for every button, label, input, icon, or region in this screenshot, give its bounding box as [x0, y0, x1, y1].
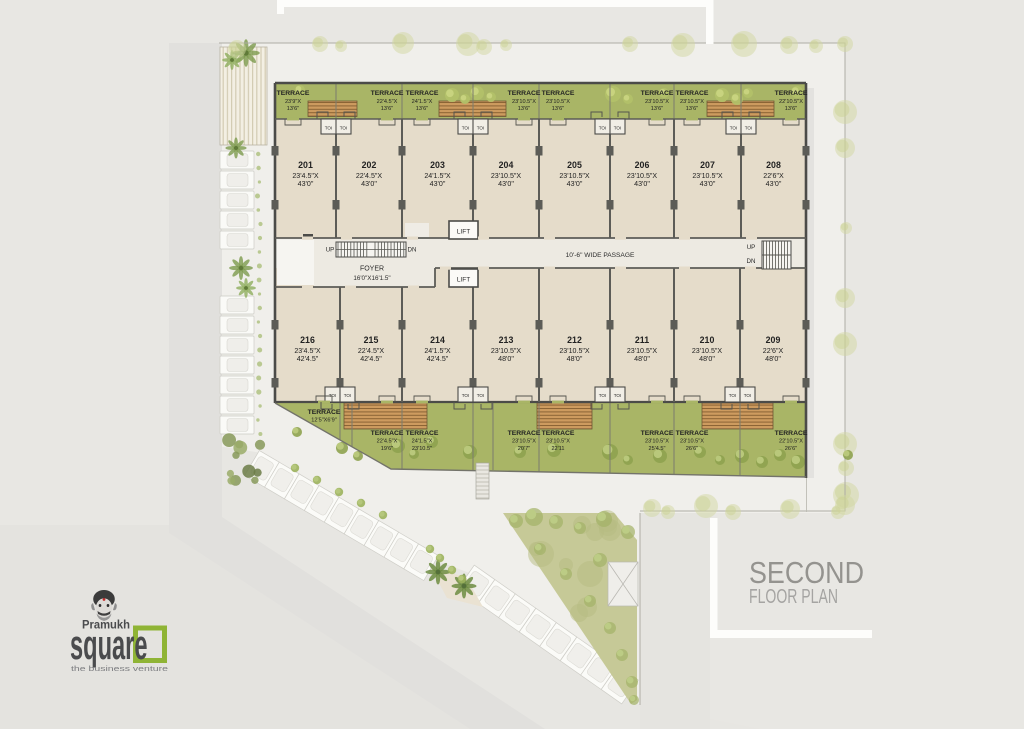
svg-text:10'-6" WIDE PASSAGE: 10'-6" WIDE PASSAGE — [566, 252, 635, 259]
svg-text:13'6": 13'6" — [287, 106, 299, 112]
svg-text:203: 203 — [430, 160, 445, 170]
svg-text:23'10.5"X: 23'10.5"X — [512, 439, 536, 445]
svg-text:22'10.5"X: 22'10.5"X — [779, 99, 803, 105]
svg-text:215: 215 — [364, 335, 379, 345]
svg-text:207: 207 — [700, 160, 715, 170]
svg-text:48'0": 48'0" — [567, 355, 583, 363]
svg-text:213: 213 — [499, 335, 514, 345]
svg-text:43'0": 43'0" — [361, 180, 377, 188]
svg-text:201: 201 — [298, 160, 313, 170]
svg-text:FOYER: FOYER — [360, 266, 384, 273]
svg-text:TOI: TOI — [462, 393, 470, 398]
svg-text:208: 208 — [766, 160, 781, 170]
svg-text:TERRACE: TERRACE — [775, 430, 808, 437]
svg-text:48'0": 48'0" — [498, 355, 514, 363]
svg-text:TOI: TOI — [340, 126, 348, 131]
svg-text:204: 204 — [499, 160, 514, 170]
svg-text:23'10.5"X: 23'10.5"X — [512, 99, 536, 105]
svg-text:TERRACE: TERRACE — [676, 90, 709, 97]
svg-text:22'4.5"X: 22'4.5"X — [377, 439, 398, 445]
svg-text:23'4.5"X: 23'4.5"X — [292, 172, 319, 180]
svg-text:TERRACE: TERRACE — [371, 430, 404, 437]
svg-text:TOI: TOI — [599, 393, 607, 398]
svg-text:13'6": 13'6" — [416, 106, 428, 112]
svg-text:43'0": 43'0" — [298, 180, 314, 188]
svg-text:TERRACE: TERRACE — [371, 90, 404, 97]
svg-text:square: square — [70, 622, 148, 669]
svg-text:43'0": 43'0" — [700, 180, 716, 188]
svg-text:22'6"X: 22'6"X — [763, 347, 784, 355]
svg-text:TOI: TOI — [329, 393, 337, 398]
svg-text:LIFT: LIFT — [457, 229, 470, 236]
svg-text:TOI: TOI — [477, 126, 485, 131]
svg-text:UP: UP — [326, 247, 335, 254]
svg-text:TOI: TOI — [614, 393, 622, 398]
svg-text:TOI: TOI — [344, 393, 352, 398]
svg-text:23'10.5"X: 23'10.5"X — [645, 439, 669, 445]
svg-text:TERRACE: TERRACE — [542, 430, 575, 437]
svg-text:16'0"X16'1.5": 16'0"X16'1.5" — [353, 275, 390, 282]
svg-text:24'1.5"X: 24'1.5"X — [424, 172, 451, 180]
svg-text:23'10.5"X: 23'10.5"X — [491, 172, 522, 180]
svg-text:23'10.5"X: 23'10.5"X — [680, 439, 704, 445]
svg-text:43'0": 43'0" — [766, 180, 782, 188]
svg-text:43'0": 43'0" — [567, 180, 583, 188]
svg-text:48'0": 48'0" — [699, 355, 715, 363]
svg-text:UP: UP — [747, 244, 756, 251]
svg-text:13'6": 13'6" — [518, 106, 530, 112]
svg-text:FLOOR PLAN: FLOOR PLAN — [749, 586, 838, 608]
svg-text:TERRACE: TERRACE — [508, 430, 541, 437]
svg-text:DN: DN — [747, 258, 756, 265]
svg-text:202: 202 — [362, 160, 377, 170]
svg-text:26'6": 26'6" — [686, 446, 698, 452]
svg-text:TERRACE: TERRACE — [508, 90, 541, 97]
svg-text:TOI: TOI — [599, 126, 607, 131]
svg-text:TERRACE: TERRACE — [641, 90, 674, 97]
svg-text:20'7": 20'7" — [518, 446, 530, 452]
svg-text:TOI: TOI — [729, 393, 737, 398]
svg-text:43'0": 43'0" — [634, 180, 650, 188]
svg-text:22'11: 22'11 — [551, 446, 564, 452]
svg-text:13'6": 13'6" — [686, 106, 698, 112]
svg-text:23'4.5"X: 23'4.5"X — [294, 347, 321, 355]
svg-text:13'6": 13'6" — [785, 106, 797, 112]
svg-text:25'4.5": 25'4.5" — [648, 446, 665, 452]
svg-text:23'9"X: 23'9"X — [285, 99, 301, 105]
svg-text:23'10.5"X: 23'10.5"X — [692, 172, 723, 180]
svg-text:23'10.5"X: 23'10.5"X — [546, 99, 570, 105]
svg-text:43'0": 43'0" — [498, 180, 514, 188]
svg-text:26'6": 26'6" — [785, 446, 797, 452]
svg-text:210: 210 — [700, 335, 715, 345]
svg-text:23'10.5"X: 23'10.5"X — [645, 99, 669, 105]
svg-text:22'4.5"X: 22'4.5"X — [377, 99, 398, 105]
svg-text:SECOND: SECOND — [749, 555, 864, 590]
svg-text:12'5"X6'9": 12'5"X6'9" — [311, 418, 336, 424]
svg-text:23'10.5"X: 23'10.5"X — [546, 439, 570, 445]
svg-text:24'1.5"X: 24'1.5"X — [424, 347, 451, 355]
svg-text:13'6": 13'6" — [651, 106, 663, 112]
svg-text:13'6": 13'6" — [381, 106, 393, 112]
svg-text:TERRACE: TERRACE — [406, 90, 439, 97]
svg-text:23'10.5"X: 23'10.5"X — [680, 99, 704, 105]
svg-text:the business venture: the business venture — [71, 664, 168, 673]
svg-text:209: 209 — [766, 335, 781, 345]
svg-text:212: 212 — [567, 335, 582, 345]
svg-text:22'6"X: 22'6"X — [763, 172, 784, 180]
svg-text:42'4.5": 42'4.5" — [360, 355, 382, 363]
svg-text:23'10.5"X: 23'10.5"X — [627, 172, 658, 180]
svg-text:22'4.5"X: 22'4.5"X — [358, 347, 385, 355]
svg-text:42'4.5": 42'4.5" — [297, 355, 319, 363]
svg-text:TERRACE: TERRACE — [308, 409, 341, 416]
svg-text:TOI: TOI — [744, 393, 752, 398]
svg-text:TOI: TOI — [745, 126, 753, 131]
svg-text:TOI: TOI — [462, 126, 470, 131]
svg-text:216: 216 — [300, 335, 315, 345]
svg-text:TERRACE: TERRACE — [542, 90, 575, 97]
svg-text:23'10.5"X: 23'10.5"X — [627, 347, 658, 355]
svg-text:DN: DN — [408, 247, 417, 254]
svg-text:23'10.5"X: 23'10.5"X — [491, 347, 522, 355]
svg-text:23'10.5"X: 23'10.5"X — [559, 347, 590, 355]
svg-text:TOI: TOI — [614, 126, 622, 131]
svg-text:23'10.5": 23'10.5" — [412, 446, 432, 452]
svg-text:LIFT: LIFT — [457, 277, 470, 284]
svg-text:206: 206 — [635, 160, 650, 170]
svg-text:TOI: TOI — [325, 126, 333, 131]
svg-text:13'6": 13'6" — [552, 106, 564, 112]
svg-text:48'0": 48'0" — [634, 355, 650, 363]
svg-text:TOI: TOI — [477, 393, 485, 398]
svg-text:24'1.5"X: 24'1.5"X — [412, 99, 433, 105]
svg-text:TERRACE: TERRACE — [277, 90, 310, 97]
svg-text:TERRACE: TERRACE — [676, 430, 709, 437]
svg-text:TERRACE: TERRACE — [775, 90, 808, 97]
svg-text:214: 214 — [430, 335, 445, 345]
svg-text:43'0": 43'0" — [430, 180, 446, 188]
svg-text:TERRACE: TERRACE — [641, 430, 674, 437]
svg-text:24'1.5"X: 24'1.5"X — [412, 439, 433, 445]
svg-text:48'0": 48'0" — [765, 355, 781, 363]
svg-text:23'10.5"X: 23'10.5"X — [559, 172, 590, 180]
svg-text:23'10.5"X: 23'10.5"X — [692, 347, 723, 355]
svg-text:19'6": 19'6" — [381, 446, 393, 452]
svg-text:22'4.5"X: 22'4.5"X — [356, 172, 383, 180]
svg-text:22'10.5"X: 22'10.5"X — [779, 439, 803, 445]
svg-text:211: 211 — [635, 335, 649, 345]
svg-text:TOI: TOI — [730, 126, 738, 131]
svg-text:42'4.5": 42'4.5" — [427, 355, 449, 363]
svg-text:205: 205 — [567, 160, 582, 170]
svg-text:TERRACE: TERRACE — [406, 430, 439, 437]
